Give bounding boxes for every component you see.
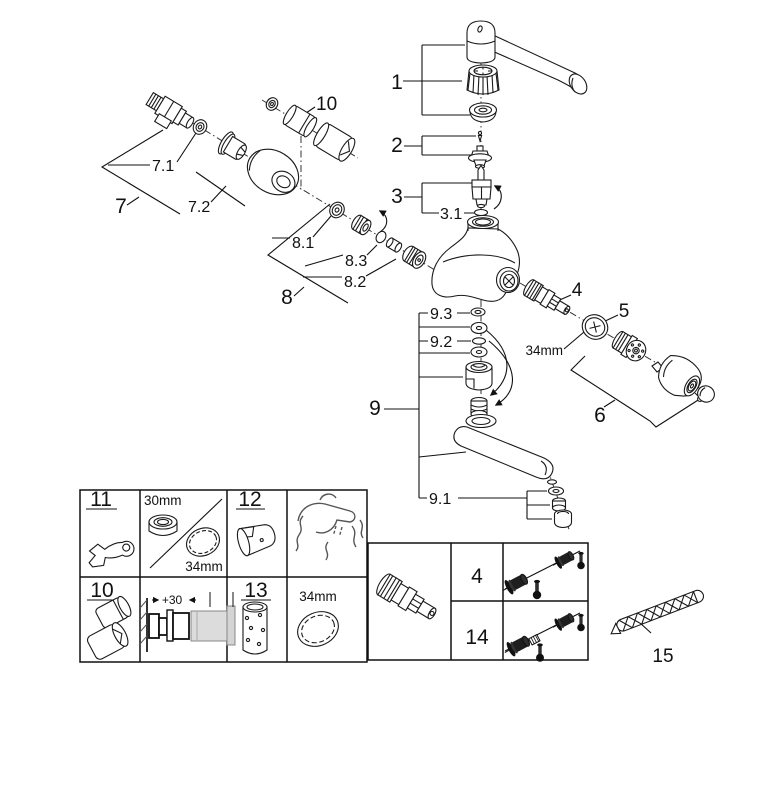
callout-15: 15: [652, 646, 673, 667]
o-ring-3-1: [475, 210, 488, 216]
spout-collar-nut: [466, 362, 492, 391]
bushing-7-2: [216, 130, 251, 165]
screw-row-14-label: 14: [465, 626, 489, 649]
legend-cell-12: 12: [238, 488, 261, 511]
legend-table: [80, 490, 367, 662]
union-nut-8-2: [400, 244, 429, 271]
callout-9: 9: [369, 397, 381, 420]
faucet-body: [432, 216, 520, 302]
ring-9-3: [471, 308, 485, 316]
callout-9-2: 9.2: [430, 334, 452, 351]
legend-dim-34mm-bottom: 34mm: [299, 589, 337, 604]
sleeve-12-icon: [235, 520, 278, 557]
ring-34mm-icon-top: [182, 523, 224, 561]
assembly-axes: [155, 58, 706, 532]
callout-8-3: 8.3: [345, 253, 367, 270]
callout-4: 4: [572, 280, 583, 301]
callout-5: 5: [619, 301, 630, 322]
callout-2: 2: [391, 134, 403, 157]
legend-dim-30mm: 30mm: [144, 493, 182, 508]
exploded-diagram-canvas: 1 2 3 3.1 7 7.1 7.2 8 8.1 8.3 8.2 9 9.3 …: [0, 0, 762, 800]
screw-2: [478, 131, 481, 141]
check-valve-8-3: [349, 213, 373, 237]
callout-7-2: 7.2: [188, 199, 210, 216]
cartridge-3: [472, 166, 491, 208]
grease-stick-15: [608, 589, 706, 637]
retaining-ring-1: [470, 103, 497, 122]
valve-insert-2: [469, 146, 492, 168]
check-valve-4: [521, 278, 573, 320]
ring-34mm-5: [578, 310, 613, 344]
callout-7-1: 7.1: [152, 158, 174, 175]
check-valve-panel-icon: [374, 572, 441, 626]
aerator-parts-9-1: [548, 480, 572, 528]
cover-caps-10-icon: [86, 595, 134, 661]
legend-cell-11: 11: [90, 488, 112, 511]
wall-extension-icon: [140, 592, 235, 652]
wall-union-elbow: [141, 90, 197, 139]
callout-8-2: 8.2: [344, 274, 366, 291]
washer-9a: [471, 323, 487, 334]
washer-9b: [471, 347, 487, 357]
callout-7: 7: [115, 195, 127, 218]
dim-34mm-label: 34mm: [525, 343, 563, 358]
callout-9-3: 9.3: [430, 306, 452, 323]
o-ring-9-2: [473, 338, 486, 344]
callout-6: 6: [594, 404, 606, 427]
callout-8-1: 8.1: [292, 235, 314, 252]
callout-8: 8: [281, 286, 293, 309]
screw-set-row-14: [501, 611, 585, 662]
legend-dim-34mm-top: 34mm: [185, 559, 223, 574]
legend-dim-plus30: +30: [162, 593, 183, 607]
nipple-8: [385, 237, 403, 253]
o-ring-8-3: [374, 230, 388, 245]
adjustment-knob: [609, 329, 649, 365]
callout-1: 1: [391, 71, 403, 94]
steam-faucet-icon: [296, 494, 363, 560]
cover-cap-10b: [311, 121, 358, 163]
screw-row-4-label: 4: [471, 565, 483, 588]
ring-34mm-icon-bottom: [292, 605, 344, 652]
callout-10: 10: [316, 94, 337, 115]
cap-nut-1: [467, 65, 499, 95]
wrench-icon: [84, 534, 136, 570]
perforated-tube-13-icon: [243, 602, 267, 654]
nut-30mm-icon: [149, 515, 177, 536]
callout-9-1: 9.1: [429, 491, 451, 508]
callout-3: 3: [391, 185, 403, 208]
callout-3-1: 3.1: [440, 206, 462, 223]
legend-cell-13: 13: [244, 579, 267, 602]
screw-set-row-4: [499, 549, 585, 599]
diagram-page: 1 2 3 3.1 7 7.1 7.2 8 8.1 8.3 8.2 9 9.3 …: [0, 0, 762, 800]
legend-cell-10: 10: [90, 579, 113, 602]
swivel-spout-9: [454, 415, 553, 479]
escutcheon-dome-cover: [239, 140, 307, 204]
